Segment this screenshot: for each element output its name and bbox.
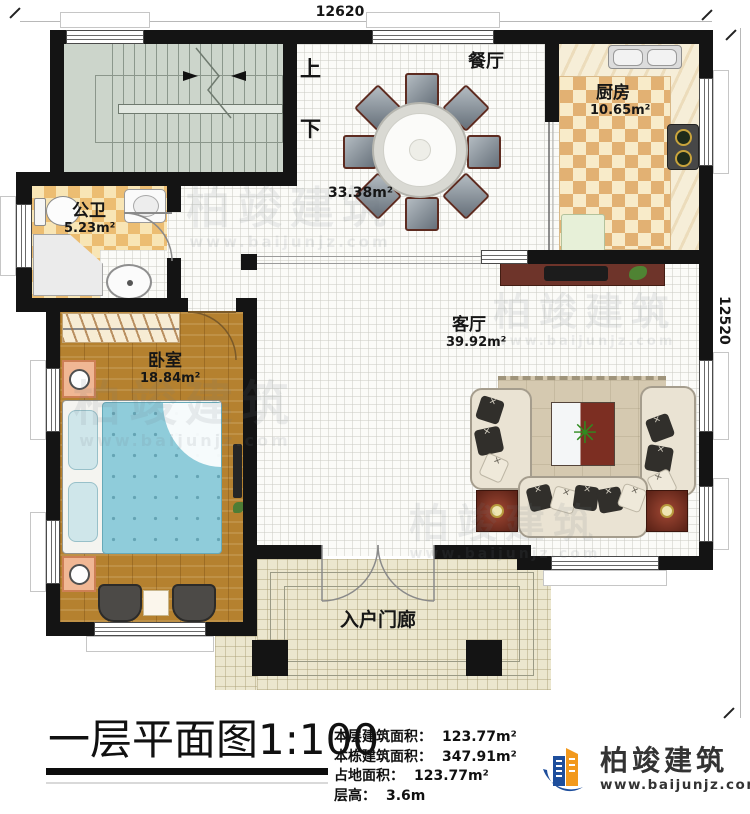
window-sill: [713, 70, 729, 174]
nightstand: [62, 556, 96, 592]
wall-stub: [517, 545, 531, 570]
room-label-porch: 入户门廊: [340, 610, 416, 631]
porch-column: [252, 640, 288, 676]
stat-row: 层高： 3.6m: [334, 787, 517, 807]
porch-slab-corner: [215, 636, 257, 690]
company-logo: 柏竣建筑 www.baijunjz.com: [538, 740, 750, 798]
stat-row: 占地面积： 123.77m²: [334, 767, 517, 787]
tv: [544, 266, 608, 281]
dimension-tick: [723, 707, 734, 718]
burner: [675, 129, 692, 146]
stat-row: 本栋建筑面积： 347.91m²: [334, 748, 517, 768]
staircase: [64, 44, 283, 172]
sofa-pillow: ✕: [474, 426, 505, 457]
bathroom-sink: [106, 264, 152, 300]
dining-chair: [467, 135, 501, 169]
wall-bath-north: [16, 172, 297, 186]
window-living-east: [699, 486, 713, 542]
bedroom-chair: [98, 584, 142, 622]
window-living-east: [699, 360, 713, 432]
stat-value: 123.77m²: [414, 767, 489, 787]
room-label-bedroom: 卧室: [148, 352, 182, 371]
wall-bath-east: [167, 258, 181, 298]
window-sill: [30, 512, 46, 592]
title-underline: [46, 768, 328, 775]
stat-value: 3.6m: [386, 787, 425, 807]
dimension-tick: [725, 29, 736, 40]
window-sill: [713, 352, 729, 440]
sink-basin: [613, 49, 643, 66]
logo-icon: [538, 740, 592, 798]
room-area-bedroom: 18.84m²: [140, 372, 200, 386]
window-kitchen-east: [699, 78, 713, 166]
bed-pillow: [68, 410, 98, 470]
window-bathroom-west: [16, 204, 32, 268]
plan-title-text: 一层平面图: [48, 715, 258, 764]
window-sill: [366, 12, 500, 28]
stat-value: 123.77m²: [442, 728, 517, 748]
burner: [675, 150, 692, 167]
room-area-bathroom: 5.23m²: [64, 222, 115, 236]
room-label-living: 客厅: [452, 316, 486, 335]
coffee-table: ✳: [551, 402, 615, 466]
stat-row: 本层建筑面积： 123.77m²: [334, 728, 517, 748]
window-dining-top: [372, 30, 494, 44]
stat-label: 本层建筑面积：: [334, 728, 432, 748]
side-table: [646, 490, 688, 532]
window-sill: [86, 636, 214, 652]
lamp: [69, 369, 90, 390]
bed-quilt: [102, 402, 222, 554]
tv-cabinet: [500, 262, 665, 286]
wardrobe: [62, 313, 180, 343]
bedroom-tv: [233, 444, 242, 498]
wall-stair-east: [283, 30, 297, 186]
stat-label: 占地面积：: [334, 767, 404, 787]
fridge: [561, 214, 605, 252]
dimension-tick: [9, 7, 20, 18]
window-bedroom-west: [46, 520, 60, 584]
sink-drain: [127, 280, 133, 286]
bedroom-table: [143, 590, 169, 616]
plan-title: 一层平面图1:100: [48, 706, 379, 767]
bathroom-cabinet: [124, 189, 166, 223]
dining-table: [372, 102, 468, 198]
window-sill: [713, 478, 729, 550]
title-underline-thin: [46, 782, 328, 784]
cabinet-plant: [629, 266, 647, 280]
stats-block: 本层建筑面积： 123.77m² 本栋建筑面积： 347.91m² 占地面积： …: [334, 728, 517, 806]
kitchen-sink: [608, 45, 682, 69]
nightstand: [62, 360, 96, 398]
logo-name: 柏竣建筑: [600, 745, 750, 777]
window-bedroom-south: [94, 622, 206, 636]
wall-kitchen-south: [528, 250, 713, 264]
window-sill: [543, 570, 667, 586]
dimension-line-right: [740, 28, 741, 718]
table-lamp: [490, 504, 504, 518]
wall-porch-left: [245, 545, 322, 559]
window-living-south: [551, 556, 659, 570]
floor-plan-page: 12620 12520: [0, 0, 750, 814]
stat-label: 层高：: [334, 787, 376, 807]
room-label-kitchen: 厨房: [596, 84, 630, 103]
bed-pillow: [68, 482, 98, 542]
wall-kitchen-west: [545, 30, 559, 122]
table-plant: ✳: [570, 419, 600, 449]
wall-bath-east: [167, 186, 181, 212]
window-sill: [0, 196, 16, 276]
wall-bed-north: [236, 298, 257, 312]
wall-bed-east: [243, 312, 257, 636]
stair-landing-rail: [118, 104, 283, 114]
toilet-tank: [34, 198, 46, 226]
lamp: [69, 564, 90, 585]
side-table: [476, 490, 518, 532]
porch-column: [466, 640, 502, 676]
wall-bed-west: [46, 312, 60, 636]
ceiling-beam-line: [257, 256, 481, 264]
stair-down-label: 下: [300, 118, 321, 141]
table-lamp: [660, 504, 674, 518]
stair-up-label: 上: [300, 58, 321, 81]
room-label-bathroom: 公卫: [72, 202, 106, 221]
dining-table-center: [409, 139, 431, 161]
wall-bed-north: [16, 298, 188, 312]
dining-chair: [405, 197, 439, 231]
window-stair-top: [66, 30, 144, 44]
window-bedroom-west: [46, 368, 60, 432]
room-area-living: 39.92m²: [446, 336, 506, 350]
stat-value: 347.91m²: [442, 748, 517, 768]
hall-column: [241, 254, 257, 270]
room-area-kitchen: 10.65m²: [590, 104, 650, 118]
window-kitchen-pass: [481, 250, 528, 264]
window-sill: [60, 12, 150, 28]
sofa-pillow: ✕: [572, 484, 599, 511]
logo-url: www.baijunjz.com: [600, 777, 750, 793]
dimension-right: 12520: [716, 296, 731, 360]
room-area-dining: 33.38m²: [328, 186, 393, 201]
room-label-dining: 餐厅: [468, 52, 504, 72]
stove: [667, 124, 699, 170]
bedroom-chair: [172, 584, 216, 622]
stat-label: 本栋建筑面积：: [334, 748, 432, 768]
window-sill: [30, 360, 46, 440]
dimension-tick: [701, 9, 712, 20]
sink-basin: [647, 49, 677, 66]
sofa-pillow: ✕: [644, 444, 674, 474]
wall-stair-west: [50, 30, 64, 176]
cabinet-basin: [133, 195, 159, 217]
